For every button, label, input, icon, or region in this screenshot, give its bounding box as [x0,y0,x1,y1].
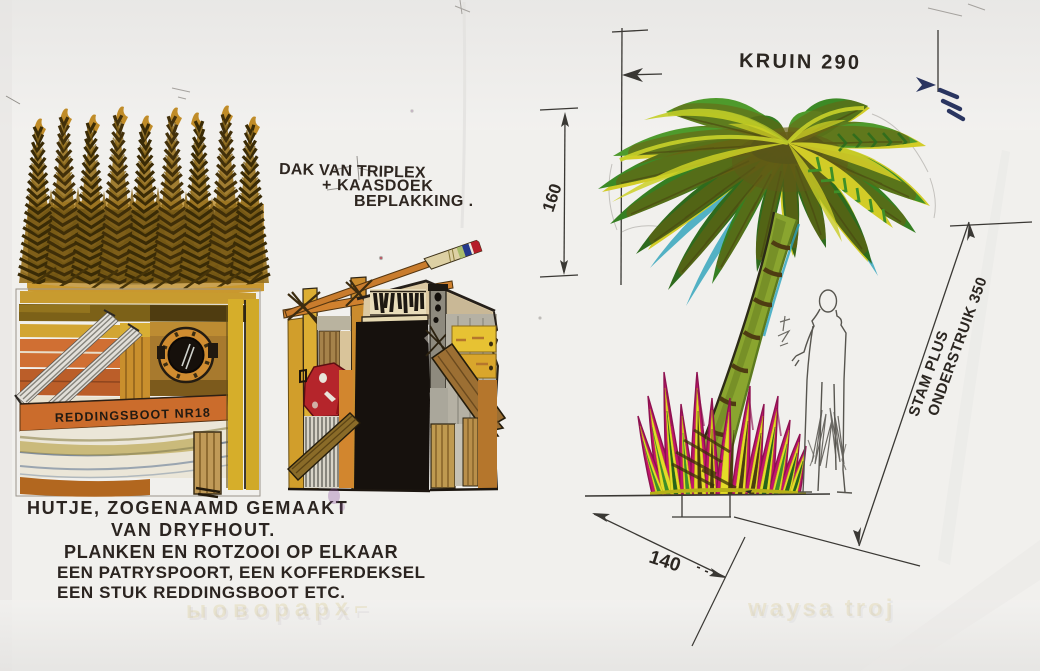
svg-text:VAN DRYFHOUT.: VAN DRYFHOUT. [111,520,276,540]
svg-text:waysa troj: waysa troj [749,597,897,624]
svg-text:HUTJE, ZOGENAAMD GEMAAKT: HUTJE, ZOGENAAMD GEMAAKT [27,498,348,518]
svg-text:EEN PATRYSPOORT, EEN KOFFERDEK: EEN PATRYSPOORT, EEN KOFFERDEKSEL [57,563,426,582]
svg-text:KRUIN 290: KRUIN 290 [739,50,861,74]
svg-text:ыовоpaрx⌐: ыовоpaрx⌐ [188,599,376,626]
svg-text:PLANKEN EN ROTZOOI OP ELKAAR: PLANKEN EN ROTZOOI OP ELKAAR [64,542,398,562]
svg-text:BEPLAKKING .: BEPLAKKING . [354,193,473,210]
